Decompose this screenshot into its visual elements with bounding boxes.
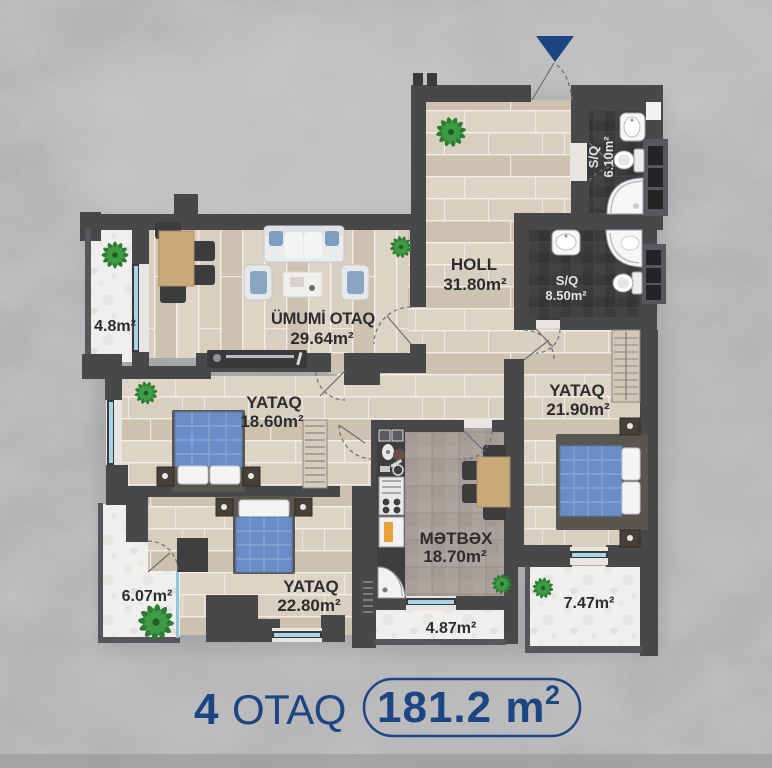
svg-text:2: 2	[545, 680, 560, 710]
svg-text:22.80m²: 22.80m²	[277, 596, 341, 615]
svg-text:29.64m²: 29.64m²	[290, 329, 354, 348]
svg-text:S/Q: S/Q	[586, 146, 601, 168]
svg-text:181.2 m: 181.2 m	[377, 683, 545, 732]
svg-text:4.8m²: 4.8m²	[94, 318, 136, 335]
svg-text:4: 4	[194, 685, 219, 734]
svg-text:OTAQ: OTAQ	[232, 686, 346, 733]
svg-text:18.70m²: 18.70m²	[423, 547, 487, 566]
svg-text:8.50m²: 8.50m²	[545, 288, 587, 303]
svg-text:18.60m²: 18.60m²	[240, 412, 304, 431]
svg-text:7.47m²: 7.47m²	[564, 595, 615, 612]
svg-text:S/Q: S/Q	[556, 273, 578, 288]
svg-text:6.10m²: 6.10m²	[601, 136, 616, 178]
svg-text:YATAQ: YATAQ	[549, 381, 604, 400]
svg-text:21.90m²: 21.90m²	[546, 400, 610, 419]
svg-text:HOLL: HOLL	[451, 255, 497, 274]
svg-text:31.80m²: 31.80m²	[443, 275, 507, 294]
svg-text:YATAQ: YATAQ	[283, 577, 338, 596]
svg-text:YATAQ: YATAQ	[246, 393, 301, 412]
svg-text:6.07m²: 6.07m²	[122, 588, 173, 605]
svg-text:4.87m²: 4.87m²	[426, 620, 477, 637]
svg-text:MƏTBƏX: MƏTBƏX	[420, 529, 494, 548]
svg-text:ÜMUMİ OTAQ: ÜMUMİ OTAQ	[271, 309, 375, 328]
